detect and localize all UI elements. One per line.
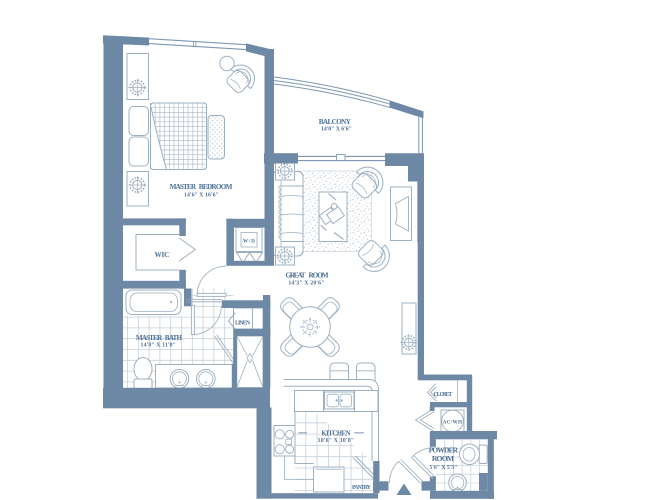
svg-text:ROOM: ROOM: [432, 454, 455, 463]
svg-text:14'6" X 16'6": 14'6" X 16'6": [184, 192, 219, 198]
svg-text:MASTER: MASTER: [136, 334, 163, 342]
svg-text:BALCONY: BALCONY: [319, 118, 352, 126]
svg-text:14'0" X 6'6": 14'0" X 6'6": [321, 127, 352, 133]
svg-text:MASTER: MASTER: [170, 183, 197, 191]
svg-text:AC/WH: AC/WH: [443, 419, 463, 425]
svg-text:10'6" X 10'8": 10'6" X 10'8": [318, 438, 355, 444]
svg-text:PANTRY: PANTRY: [352, 485, 372, 491]
svg-text:14'3" X 20'6": 14'3" X 20'6": [288, 281, 324, 287]
svg-text:14'0" X 11'0": 14'0" X 11'0": [141, 343, 177, 349]
svg-text:W/D: W/D: [243, 240, 255, 245]
svg-text:BATH: BATH: [165, 334, 183, 342]
svg-text:5'6" X 5'3": 5'6" X 5'3": [429, 465, 457, 471]
svg-text:LINEN: LINEN: [235, 321, 251, 327]
svg-text:WIC: WIC: [155, 251, 170, 259]
svg-text:CLOSET: CLOSET: [433, 392, 452, 398]
svg-text:BEDROOM: BEDROOM: [199, 183, 233, 191]
svg-text:KITCHEN: KITCHEN: [321, 431, 351, 438]
svg-text:POWDER: POWDER: [429, 445, 459, 454]
svg-text:GREAT: GREAT: [286, 272, 306, 280]
svg-text:ROOM: ROOM: [309, 272, 329, 280]
